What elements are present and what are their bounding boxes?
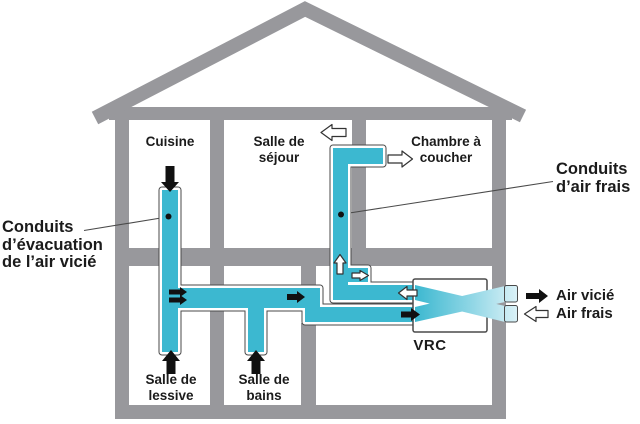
room-label-living-room: Salle de séjour	[229, 134, 329, 165]
exhaust-ducts-title: Conduits d’évacuation de l’air vicié	[2, 219, 103, 272]
legend-stale-air-label: Air vicié	[556, 288, 614, 304]
hrv-house-diagram: Conduits d’évacuation de l’air vicié Con…	[0, 0, 640, 424]
wall-living-bedroom	[352, 120, 366, 248]
fresh-ducts-title: Conduits d’air frais	[556, 161, 630, 196]
room-label-bedroom: Chambre à coucher	[386, 134, 506, 165]
exhaust-title-line-1: Conduits	[2, 219, 103, 237]
floor-band	[129, 248, 492, 266]
fresh-title-line-2: d’air frais	[556, 179, 630, 197]
living-room-label-line-1: Salle de	[229, 134, 329, 150]
ceiling-band	[109, 107, 512, 120]
living-room-label-line-2: séjour	[229, 150, 329, 166]
fresh-air-duct	[333, 148, 418, 300]
room-label-kitchen: Cuisine	[130, 134, 210, 150]
laundry-label-line-1: Salle de	[121, 372, 221, 388]
leader-lines	[84, 182, 553, 231]
room-label-bathroom: Salle de bains	[214, 372, 314, 403]
legend-fresh-air-label: Air frais	[556, 306, 613, 322]
room-label-laundry: Salle de lessive	[121, 372, 221, 403]
fresh-leader-dot	[338, 212, 344, 218]
legend-stale-arrow-icon	[526, 289, 548, 303]
vrc-unit-label: VRC	[404, 337, 456, 354]
wall-kitchen-living	[210, 120, 224, 248]
bathroom-label-line-2: bains	[214, 388, 314, 404]
fresh-leader-line	[343, 182, 553, 215]
roof	[95, 9, 523, 118]
wall-bath-vrc-upper	[301, 266, 316, 286]
bathroom-label-line-1: Salle de	[214, 372, 314, 388]
kitchen-label-line: Cuisine	[130, 134, 210, 150]
foundation-band	[115, 405, 506, 419]
exhaust-leader-dot	[166, 214, 172, 220]
exhaust-duct	[162, 190, 418, 352]
exhaust-title-line-3: de l’air vicié	[2, 254, 103, 272]
legend-fresh-arrow-icon	[525, 307, 549, 322]
exhaust-title-line-2: d’évacuation	[2, 237, 103, 255]
laundry-label-line-2: lessive	[121, 388, 221, 404]
bedroom-label-line-2: coucher	[386, 150, 506, 166]
diagram-canvas	[0, 0, 640, 424]
fresh-title-line-1: Conduits	[556, 161, 630, 179]
bedroom-label-line-1: Chambre à	[386, 134, 506, 150]
